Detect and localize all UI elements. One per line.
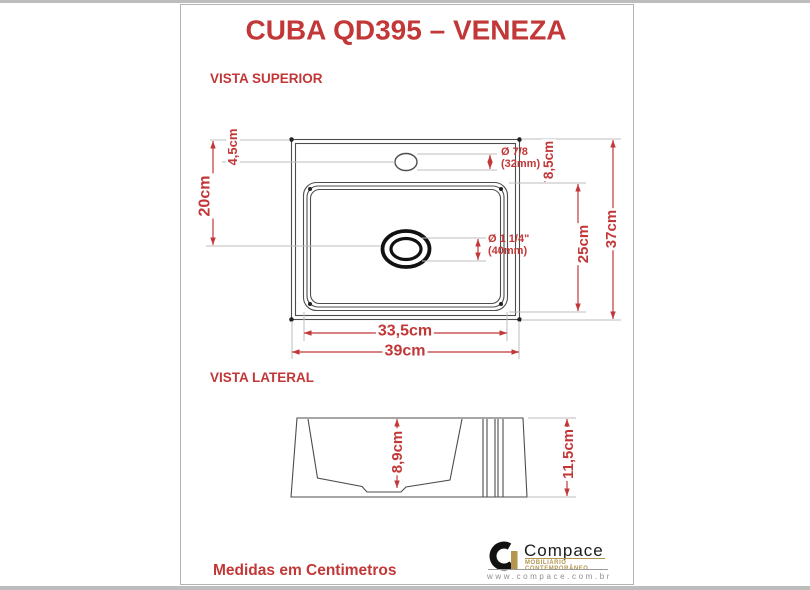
drain-diameter: Ø 1 1/4": [488, 233, 529, 245]
faucet-hole-diameter: Ø 7/8: [501, 146, 540, 158]
faucet-hole-mm: (32mm): [501, 158, 540, 170]
dim-top-to-faucet: 4,5cm: [226, 127, 240, 168]
website-rule: [488, 569, 608, 570]
dim-back-rim: 8,5cm: [542, 139, 556, 181]
side-view-label: VISTA LATERAL: [210, 371, 314, 385]
faucet-hole: [395, 154, 417, 171]
technical-drawing: [0, 0, 810, 590]
units-note: Medidas em Centimetros: [213, 563, 396, 579]
faucet-hole-callout: Ø 7/8 (32mm): [501, 146, 540, 170]
dim-basin-length: 25cm: [576, 223, 592, 265]
drain-callout: Ø 1 1/4" (40mm): [488, 233, 529, 257]
dim-total-width: 39cm: [383, 344, 428, 361]
drawing-title: CUBA QD395 – VENEZA: [245, 15, 566, 44]
side-view-outline: [291, 418, 527, 497]
drain-hole: [383, 231, 430, 267]
dim-total-height: 11,5cm: [561, 427, 577, 481]
top-view-label: VISTA SUPERIOR: [210, 72, 323, 86]
dimension-lines: [213, 140, 613, 496]
website-url: www.compace.com.br: [487, 572, 612, 581]
extension-lines: [206, 139, 621, 497]
dim-basin-width: 33,5cm: [376, 324, 434, 341]
dim-total-depth: 37cm: [604, 208, 620, 250]
dim-top-to-drain: 20cm: [198, 174, 215, 219]
drain-mm: (40mm): [488, 245, 529, 257]
compace-logo-icon: [493, 545, 517, 569]
brand-rule: [525, 558, 605, 559]
brand-tagline: MOBILIÁRIO CONTEMPORÂNEO: [525, 560, 606, 572]
drawing-sheet: CUBA QD395 – VENEZA VISTA SUPERIOR VISTA…: [0, 0, 810, 590]
dim-inner-height: 8,9cm: [390, 429, 406, 476]
